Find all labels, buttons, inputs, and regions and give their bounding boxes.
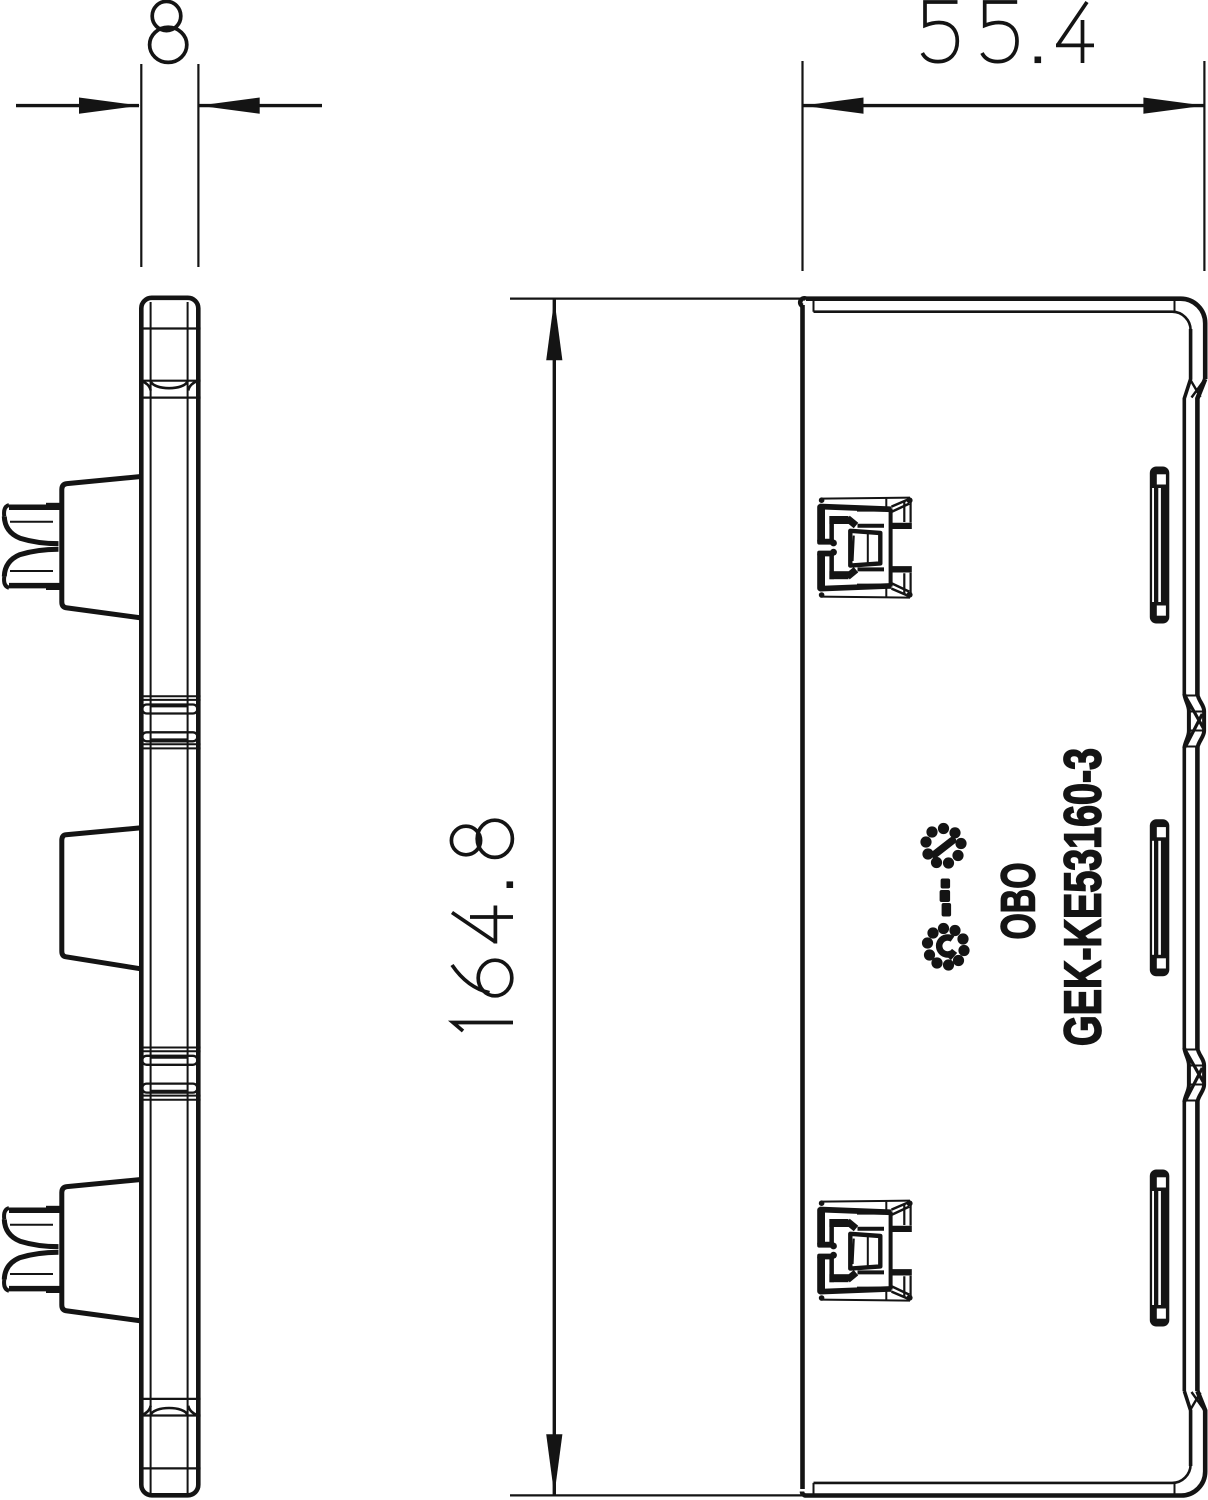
- svg-text:GEK-KE53160-3: GEK-KE53160-3: [1055, 748, 1113, 1046]
- svg-text:OBO: OBO: [993, 863, 1046, 940]
